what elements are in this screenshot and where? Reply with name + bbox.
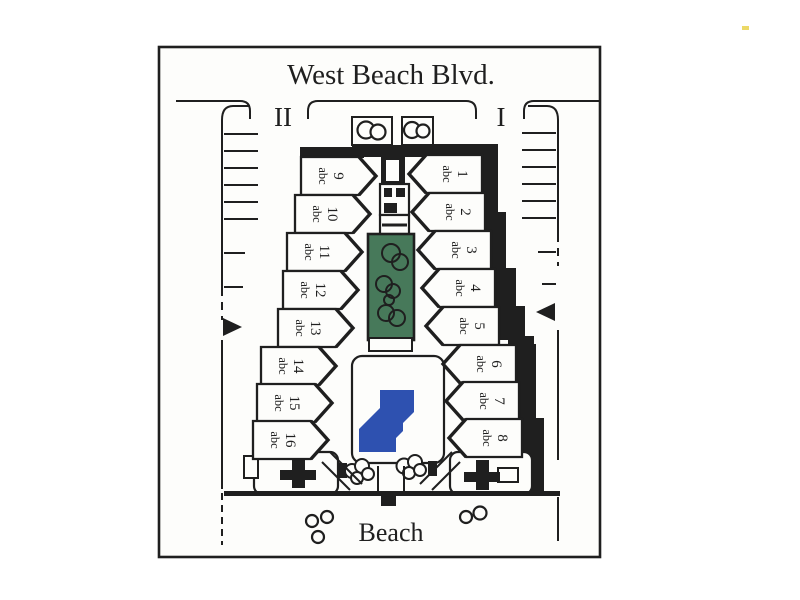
unit-13: 13abc — [278, 309, 353, 347]
unit-16: 16abc — [253, 421, 328, 459]
unit-number: 7 — [491, 397, 507, 405]
beach-steps — [381, 495, 396, 506]
unit-type-label: abc — [443, 203, 457, 221]
unit-number: 8 — [494, 434, 510, 442]
unit-number: 16 — [282, 433, 298, 449]
unit-type-label: abc — [480, 429, 494, 447]
unit-3: 3abc — [418, 231, 491, 269]
unit-type-label: abc — [316, 167, 330, 185]
unit-type-label: abc — [276, 357, 290, 375]
unit-type-label: abc — [453, 279, 467, 297]
unit-6: 6abc — [443, 345, 516, 383]
entry-planters — [352, 117, 433, 145]
unit-10: 10abc — [295, 195, 370, 233]
unit-number: 4 — [467, 284, 483, 292]
unit-type-label: abc — [272, 394, 286, 412]
unit-number: 2 — [457, 208, 473, 216]
unit-type-label: abc — [268, 431, 282, 449]
unit-7: 7abc — [446, 382, 519, 420]
unit-12: 12abc — [283, 271, 358, 309]
unit-11: 11abc — [287, 233, 362, 271]
lobby-structure — [380, 184, 409, 238]
unit-number: 11 — [316, 245, 332, 259]
unit-8: 8abc — [449, 419, 522, 457]
parking-lot-left-label: II — [274, 102, 292, 132]
unit-15: 15abc — [257, 384, 332, 422]
unit-type-label: abc — [310, 205, 324, 223]
unit-1: 1abc — [409, 155, 482, 193]
unit-type-label: abc — [477, 392, 491, 410]
unit-number: 9 — [330, 172, 346, 180]
beach-label: Beach — [359, 518, 424, 547]
street-label: West Beach Blvd. — [287, 59, 495, 91]
unit-number: 14 — [290, 359, 306, 375]
parking-lot-right-label: I — [497, 102, 506, 132]
unit-type-label: abc — [449, 241, 463, 259]
unit-number: 13 — [307, 321, 323, 336]
unit-4: 4abc — [422, 269, 495, 307]
unit-number: 1 — [454, 170, 470, 178]
garden-courtyard — [368, 234, 414, 351]
unit-type-label: abc — [457, 317, 471, 335]
unit-type-label: abc — [440, 165, 454, 183]
unit-5: 5abc — [426, 307, 499, 345]
unit-number: 6 — [488, 360, 504, 368]
unit-type-label: abc — [298, 281, 312, 299]
unit-number: 10 — [324, 207, 340, 222]
unit-type-label: abc — [474, 355, 488, 373]
pool-courtyard — [352, 356, 444, 463]
scan-speck — [742, 26, 749, 30]
unit-14: 14abc — [261, 347, 336, 385]
unit-number: 5 — [471, 322, 487, 330]
unit-number: 3 — [463, 246, 479, 254]
unit-type-label: abc — [302, 243, 316, 261]
lobby-stair-icon — [384, 188, 392, 197]
unit-9: 9abc — [301, 157, 376, 195]
lobby-stair-icon — [396, 188, 405, 197]
site-plan-svg: West Beach Blvd. II I — [0, 0, 800, 600]
unit-2: 2abc — [412, 193, 485, 231]
unit-number: 12 — [312, 283, 328, 298]
unit-number: 15 — [286, 396, 302, 411]
unit-type-label: abc — [293, 319, 307, 337]
garden-south-deck — [369, 338, 412, 351]
